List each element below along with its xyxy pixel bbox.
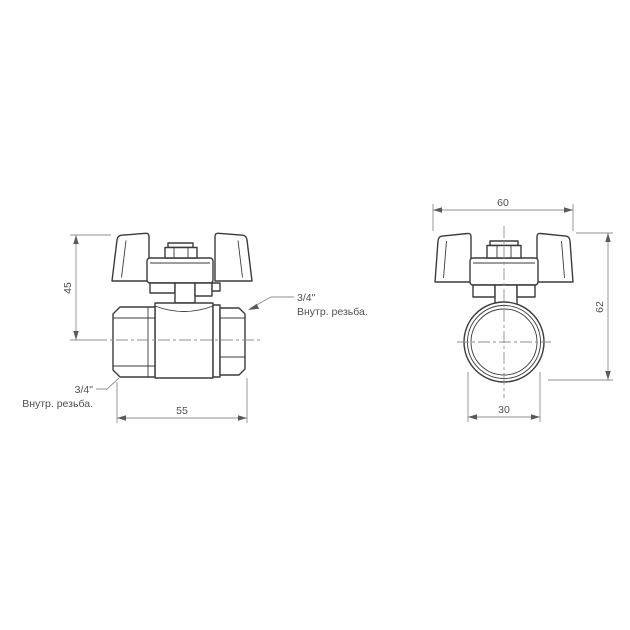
side-view: [95, 233, 262, 378]
front-handle-wing-left: [435, 233, 471, 282]
dim30-arrow-right: [531, 414, 540, 419]
callout-right-line2: Внутр. резьба.: [297, 306, 368, 318]
callout-left-leader: [96, 378, 119, 389]
side-gland-flange-right: [195, 283, 212, 296]
dim60-arrow-right: [564, 207, 573, 212]
dimension-front-width: 60: [433, 197, 573, 231]
callout-left-line2: Внутр. резьба.: [22, 398, 93, 410]
drawing-page: 45 55 3/4" Внутр. резьба. 3/4" Внутр. ре…: [0, 0, 630, 630]
dim62-arrow-top: [605, 233, 610, 242]
dim60-arrow-left: [433, 207, 442, 212]
side-stem-nut: [165, 248, 197, 259]
callout-right-line1: 3/4": [297, 292, 316, 304]
dim62-value: 62: [594, 301, 606, 313]
dim62-arrow-bottom: [605, 371, 610, 380]
technical-drawing-canvas: 45 55 3/4" Внутр. резьба. 3/4" Внутр. ре…: [0, 0, 630, 630]
side-gland-flange-left: [150, 283, 175, 293]
side-handle-wing-left: [112, 233, 149, 281]
side-body: [155, 303, 213, 378]
side-gland-step: [212, 283, 220, 291]
dim30-value: 30: [498, 404, 510, 416]
dimension-side-height: 45: [62, 235, 111, 340]
callout-left-line1: 3/4": [75, 384, 94, 396]
dim45-arrow-top: [73, 235, 78, 244]
side-handle-wing-right: [215, 233, 252, 281]
callout-left-thread: 3/4" Внутр. резьба.: [22, 378, 119, 410]
dim60-value: 60: [497, 197, 509, 209]
front-gland-flange-right: [517, 285, 535, 297]
front-gland-flange-left: [473, 285, 495, 297]
side-collar: [213, 305, 220, 377]
side-inlet-female-end: [113, 307, 155, 377]
side-handle-base: [147, 258, 213, 283]
side-gland-stem: [175, 283, 195, 303]
dim45-value: 45: [62, 282, 74, 294]
dim55-arrow-left: [117, 415, 126, 420]
front-view: [435, 226, 573, 398]
callout-right-thread: 3/4" Внутр. резьба.: [248, 292, 368, 318]
dim55-arrow-right: [238, 415, 247, 420]
dim55-value: 55: [176, 405, 188, 417]
front-handle-wing-right: [537, 233, 573, 282]
dimension-side-length: 55: [117, 378, 247, 423]
dim45-arrow-bottom: [73, 331, 78, 340]
dim30-arrow-left: [468, 414, 477, 419]
